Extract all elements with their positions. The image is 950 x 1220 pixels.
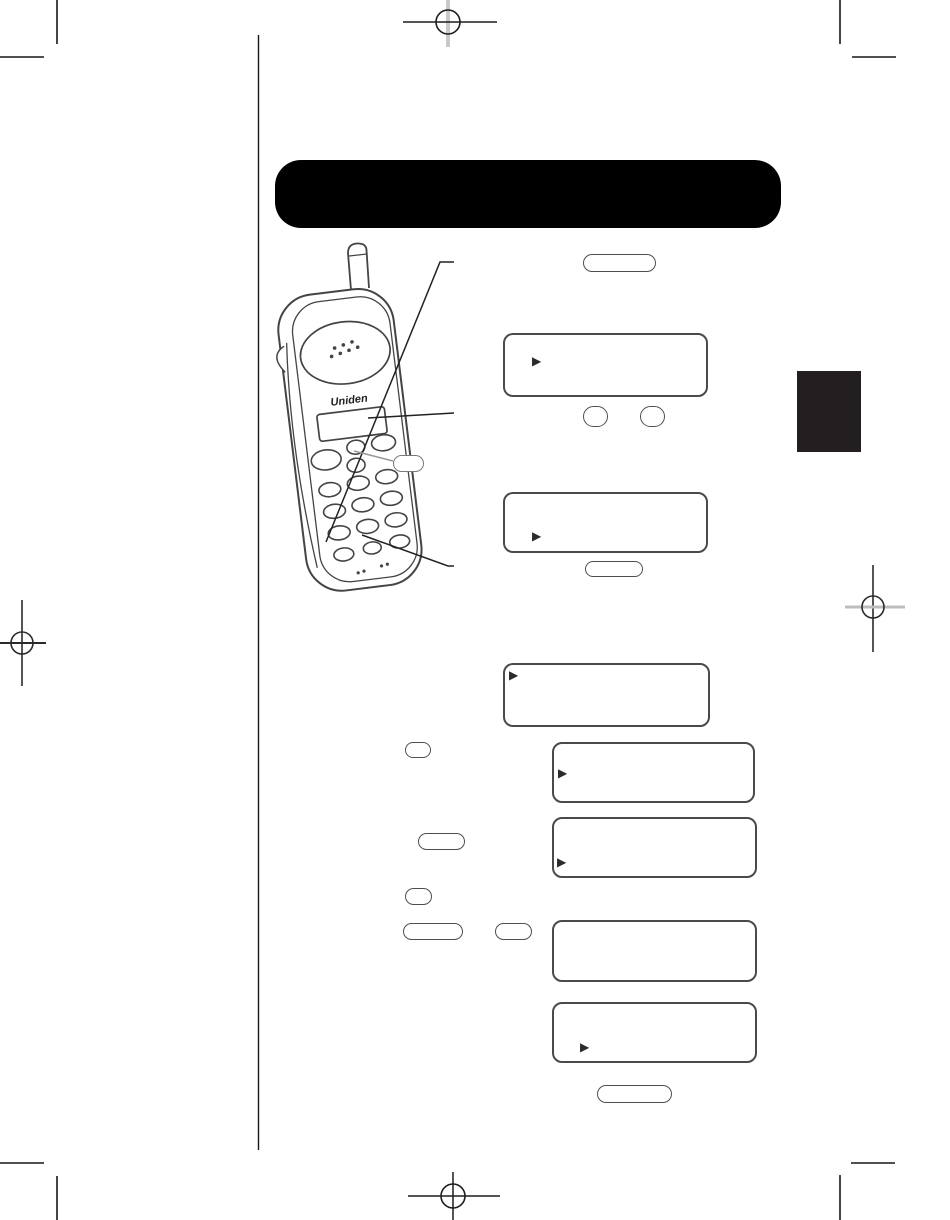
lcd-display-4: ▶ bbox=[552, 742, 755, 803]
pill-button-small bbox=[495, 923, 532, 940]
section-header-bar bbox=[275, 160, 781, 228]
pill-button-bottom bbox=[597, 1085, 672, 1103]
pill-button-top bbox=[583, 254, 656, 272]
cursor-arrow-icon: ▶ bbox=[580, 1041, 589, 1053]
pill-button-3 bbox=[418, 833, 465, 850]
lcd-display-6 bbox=[552, 920, 757, 982]
lcd-display-5: ▶ bbox=[552, 817, 757, 878]
cursor-arrow-icon: ▶ bbox=[557, 856, 566, 868]
phone-illustration: Uniden bbox=[262, 240, 460, 610]
lcd-display-1: ▶ bbox=[503, 333, 708, 397]
registration-target-icon bbox=[408, 1172, 500, 1220]
registration-target-icon bbox=[403, 0, 497, 47]
antenna-icon bbox=[348, 243, 369, 290]
cursor-arrow-icon: ▶ bbox=[532, 530, 541, 542]
oval-button-b bbox=[640, 406, 665, 427]
cursor-arrow-icon: ▶ bbox=[509, 669, 518, 681]
lcd-display-3: ▶ bbox=[503, 663, 710, 727]
registration-target-icon bbox=[0, 600, 46, 686]
section-thumb-tab bbox=[797, 371, 861, 452]
oval-button-d bbox=[405, 888, 432, 905]
lcd-display-7: ▶ bbox=[552, 1002, 757, 1063]
registration-target-icon bbox=[845, 565, 905, 652]
oval-button-a bbox=[583, 406, 608, 427]
lcd-display-2: ▶ bbox=[503, 492, 708, 553]
cursor-arrow-icon: ▶ bbox=[558, 767, 567, 779]
oval-button-c bbox=[405, 742, 431, 758]
pill-button-4 bbox=[403, 923, 463, 940]
cursor-arrow-icon: ▶ bbox=[532, 355, 541, 367]
manual-page: Uniden bbox=[0, 0, 950, 1220]
pill-button-2 bbox=[585, 561, 643, 577]
pill-button-figure-callout bbox=[393, 455, 424, 472]
